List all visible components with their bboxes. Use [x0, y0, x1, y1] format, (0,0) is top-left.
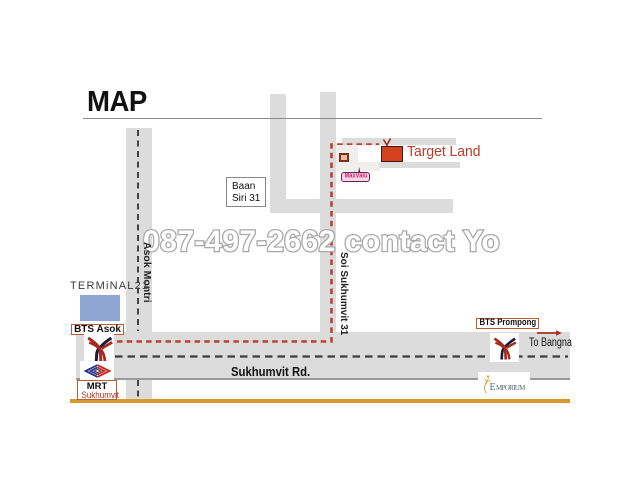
svg-text:MPORIUM: MPORIUM	[496, 384, 526, 392]
svg-text:E: E	[490, 382, 496, 393]
svg-text:087-497-2662 contact Yo: 087-497-2662 contact Yo	[143, 225, 500, 258]
